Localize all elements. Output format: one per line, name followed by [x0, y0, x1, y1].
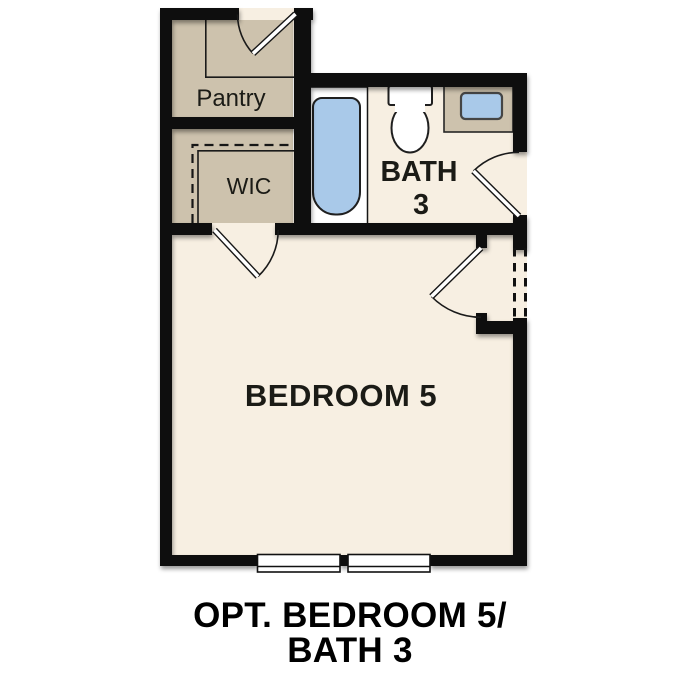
wall-window-mullion — [340, 555, 348, 566]
wic-label: WIC — [227, 173, 272, 199]
wall-bedroom-top-right — [275, 223, 527, 235]
bath-label-line1: BATH — [380, 156, 457, 188]
caption-line2: BATH 3 — [287, 631, 413, 670]
sink-basin-icon — [461, 93, 502, 119]
wall-bath-top — [294, 73, 527, 87]
bath-label-line2: 3 — [413, 189, 429, 221]
toilet-icon — [389, 86, 433, 153]
wall-pantry-right — [294, 8, 311, 235]
pantry-label: Pantry — [196, 85, 265, 112]
bedroom-label: BEDROOM 5 — [245, 378, 437, 413]
wall-bottom-left — [160, 555, 257, 566]
caption-line1: OPT. BEDROOM 5/ — [193, 596, 507, 635]
window-left — [258, 555, 341, 573]
wall-pantry-wic-divider — [172, 117, 294, 129]
wall-bottom-right — [430, 555, 527, 566]
bathtub-icon — [313, 98, 360, 215]
wall-bedroom-top-left — [172, 223, 212, 235]
wall-right-lower — [513, 318, 527, 566]
window-right — [348, 555, 430, 573]
wall-jamb-to-right — [476, 321, 527, 334]
wall-bedroom-door-jamb-top — [476, 235, 487, 248]
bath-door-opening — [513, 152, 527, 215]
wall-left — [160, 8, 172, 566]
wall-right-upper — [513, 73, 527, 152]
floor-plan: Pantry WIC BATH 3 BEDROOM 5 OPT. BEDROOM… — [0, 0, 687, 687]
